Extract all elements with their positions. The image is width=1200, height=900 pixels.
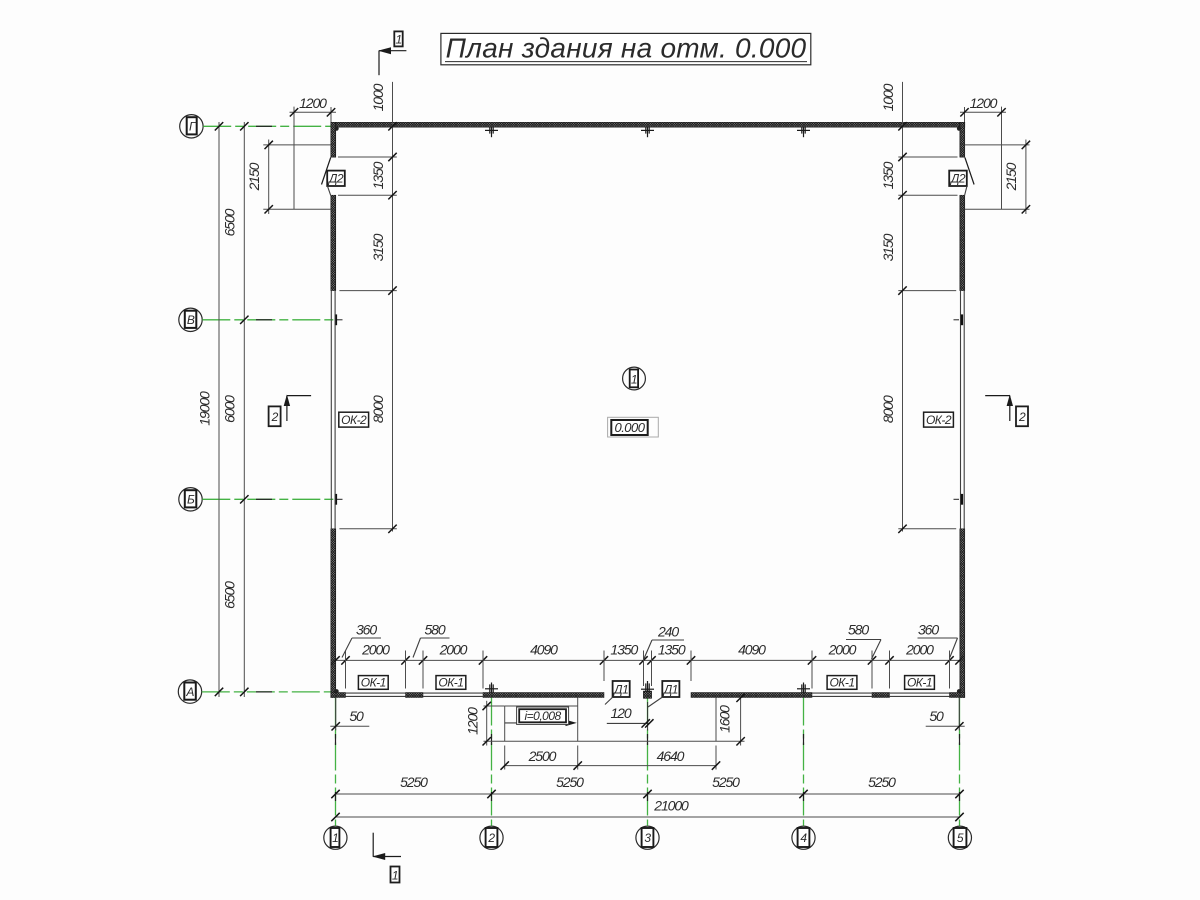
svg-text:1000: 1000 bbox=[880, 83, 896, 111]
svg-text:1: 1 bbox=[631, 372, 637, 386]
svg-text:2500: 2500 bbox=[528, 748, 557, 764]
svg-text:1: 1 bbox=[332, 831, 338, 845]
svg-text:1600: 1600 bbox=[716, 705, 732, 733]
svg-text:360: 360 bbox=[356, 622, 377, 638]
svg-text:2150: 2150 bbox=[1003, 162, 1019, 191]
svg-text:2: 2 bbox=[1018, 410, 1026, 424]
svg-text:ОК-2: ОК-2 bbox=[341, 413, 367, 427]
svg-text:Д2: Д2 bbox=[327, 171, 344, 185]
svg-text:1350: 1350 bbox=[610, 642, 638, 658]
svg-text:ОК-2: ОК-2 bbox=[926, 413, 952, 427]
svg-text:6000: 6000 bbox=[221, 395, 237, 423]
svg-text:3150: 3150 bbox=[880, 233, 896, 261]
svg-text:2000: 2000 bbox=[828, 642, 857, 658]
svg-text:6500: 6500 bbox=[221, 208, 237, 236]
svg-text:Д1: Д1 bbox=[662, 682, 678, 696]
svg-text:1200: 1200 bbox=[299, 95, 327, 111]
svg-text:240: 240 bbox=[657, 624, 679, 640]
svg-text:0.000: 0.000 bbox=[614, 420, 645, 435]
svg-text:ОК-1: ОК-1 bbox=[361, 675, 386, 689]
svg-text:580: 580 bbox=[424, 622, 445, 638]
svg-text:3150: 3150 bbox=[370, 233, 386, 261]
svg-text:2: 2 bbox=[271, 410, 279, 424]
svg-text:120: 120 bbox=[610, 705, 631, 721]
svg-text:50: 50 bbox=[349, 708, 364, 724]
svg-text:5250: 5250 bbox=[556, 774, 584, 790]
svg-text:1000: 1000 bbox=[370, 83, 386, 111]
svg-text:4090: 4090 bbox=[738, 642, 766, 658]
svg-text:ОК-1: ОК-1 bbox=[907, 675, 932, 689]
svg-text:5250: 5250 bbox=[868, 774, 896, 790]
svg-text:3: 3 bbox=[644, 831, 651, 845]
svg-text:8000: 8000 bbox=[370, 395, 386, 423]
svg-text:2150: 2150 bbox=[246, 162, 262, 191]
svg-text:2: 2 bbox=[487, 831, 495, 845]
svg-text:5250: 5250 bbox=[400, 774, 428, 790]
svg-text:План здания на отм. 0.000: План здания на отм. 0.000 bbox=[446, 33, 807, 64]
svg-text:580: 580 bbox=[848, 622, 869, 638]
svg-text:Д1: Д1 bbox=[612, 682, 628, 696]
svg-text:i=0,008: i=0,008 bbox=[524, 709, 561, 723]
svg-text:21000: 21000 bbox=[653, 798, 689, 814]
svg-text:2000: 2000 bbox=[439, 642, 468, 658]
svg-text:4: 4 bbox=[800, 831, 807, 845]
svg-text:6500: 6500 bbox=[221, 581, 237, 609]
svg-text:2000: 2000 bbox=[905, 642, 934, 658]
svg-text:1350: 1350 bbox=[880, 161, 896, 189]
svg-text:1350: 1350 bbox=[658, 642, 686, 658]
svg-text:1200: 1200 bbox=[970, 95, 998, 111]
svg-text:1: 1 bbox=[396, 33, 402, 47]
svg-text:8000: 8000 bbox=[880, 395, 896, 423]
svg-text:Д2: Д2 bbox=[949, 171, 966, 185]
svg-text:1: 1 bbox=[392, 868, 398, 882]
svg-text:ОК-1: ОК-1 bbox=[438, 675, 463, 689]
svg-text:2000: 2000 bbox=[361, 642, 390, 658]
svg-text:4090: 4090 bbox=[530, 642, 558, 658]
svg-text:4640: 4640 bbox=[657, 748, 685, 764]
svg-text:В: В bbox=[187, 313, 195, 327]
svg-text:1350: 1350 bbox=[370, 161, 386, 189]
svg-text:360: 360 bbox=[918, 622, 939, 638]
svg-text:50: 50 bbox=[929, 708, 944, 724]
svg-text:Б: Б bbox=[187, 493, 195, 507]
svg-text:А: А bbox=[185, 685, 194, 699]
svg-text:5: 5 bbox=[957, 831, 964, 845]
svg-text:1200: 1200 bbox=[465, 707, 481, 735]
svg-text:ОК-1: ОК-1 bbox=[829, 675, 854, 689]
svg-text:19000: 19000 bbox=[197, 391, 213, 426]
svg-text:5250: 5250 bbox=[712, 774, 740, 790]
